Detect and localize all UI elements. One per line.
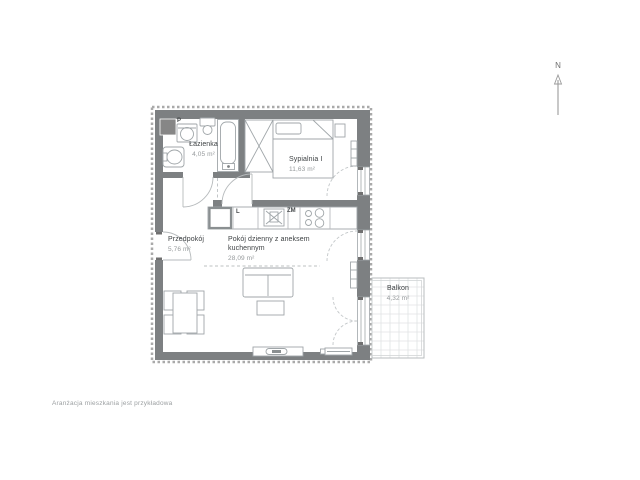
- wall-bathroom-bottom-left: [163, 172, 183, 178]
- washing-machine-tag: P: [177, 118, 181, 125]
- wall-bedroom-bottom: [252, 200, 357, 207]
- living-radiator-bottom: [321, 348, 353, 355]
- compass-label: N: [550, 61, 566, 70]
- room-name: Przedpokój: [168, 235, 204, 244]
- wall-right-1: [357, 110, 370, 167]
- dishwasher-tag: ZM: [287, 208, 296, 215]
- pillow: [276, 123, 301, 134]
- installation-shaft: [160, 119, 176, 135]
- wall-right-3: [357, 260, 370, 297]
- fridge: [210, 208, 232, 228]
- room-area: 5,76 m²: [168, 245, 204, 254]
- coffee-table: [257, 301, 284, 315]
- balcony-door: [333, 297, 370, 345]
- room-name: Balkon: [372, 284, 424, 293]
- room-name: Pokój dzienny z aneksem: [228, 235, 310, 244]
- living-window: [327, 230, 370, 261]
- wardrobe: [245, 120, 273, 172]
- toilet: [200, 118, 215, 135]
- room-area: 4,32 m²: [372, 294, 424, 303]
- room-area: 4,05 m²: [178, 150, 229, 159]
- room-label-bedroom: Sypialnia I 11,63 m²: [289, 155, 322, 174]
- dining-set: [164, 291, 204, 334]
- wall-right-4: [357, 345, 370, 360]
- kitchen-annex: [208, 207, 357, 229]
- room-label-bathroom: Łazienka 4,05 m²: [178, 140, 229, 159]
- room-name: Łazienka: [178, 140, 229, 149]
- wall-bathroom-bedroom: [238, 119, 245, 172]
- room-area: 11,63 m²: [289, 165, 322, 174]
- room-name: Sypialnia I: [289, 155, 322, 164]
- kitchen-sink: [264, 209, 284, 226]
- room-name: kuchennym: [228, 244, 310, 253]
- living-radiator-wall: [351, 262, 358, 288]
- bedside-table: [335, 124, 345, 137]
- floor-plan-page: Łazienka 4,05 m² Sypialnia I 11,63 m² Pr…: [0, 0, 640, 480]
- fridge-tag: L: [236, 209, 240, 216]
- room-label-living: Pokój dzienny z aneksem kuchennym 28,09 …: [228, 235, 310, 263]
- wall-bedroom-bottom-stub: [213, 200, 222, 207]
- bathroom-door: [183, 177, 213, 207]
- room-area: 28,09 m²: [228, 254, 310, 263]
- wall-left-lower: [155, 260, 163, 360]
- room-label-balcony: Balkon 4,32 m²: [372, 284, 424, 303]
- north-arrow: [555, 75, 562, 115]
- living-furniture: [164, 262, 357, 356]
- room-label-hall: Przedpokój 5,76 m²: [168, 235, 204, 254]
- dining-table: [173, 293, 197, 333]
- wall-right-2: [357, 195, 370, 230]
- bedroom-door: [222, 174, 252, 204]
- windows: [327, 166, 370, 345]
- footer-note: Aranżacja mieszkania jest przykładowa: [52, 400, 172, 407]
- wall-top: [155, 110, 370, 119]
- sofa: [243, 268, 293, 297]
- bedroom-radiator: [351, 141, 357, 166]
- tv-bench: [253, 347, 303, 356]
- floor-plan-drawing: [0, 0, 640, 480]
